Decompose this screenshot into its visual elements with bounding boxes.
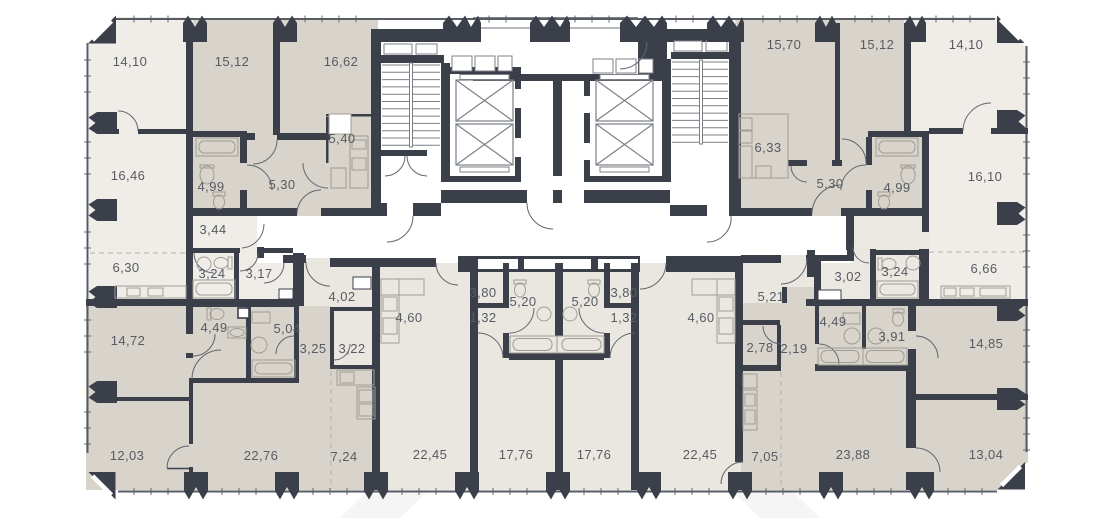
svg-text:22,45: 22,45 <box>683 447 718 462</box>
svg-text:14,10: 14,10 <box>949 37 984 52</box>
svg-text:5,04: 5,04 <box>274 321 301 336</box>
svg-text:23,88: 23,88 <box>836 447 871 462</box>
svg-text:6,30: 6,30 <box>113 260 140 275</box>
svg-text:5,30: 5,30 <box>269 177 296 192</box>
svg-text:4,60: 4,60 <box>688 310 715 325</box>
svg-text:15,70: 15,70 <box>767 37 802 52</box>
svg-text:3,24: 3,24 <box>199 266 226 281</box>
svg-text:14,10: 14,10 <box>113 54 148 69</box>
svg-text:16,10: 16,10 <box>968 169 1003 184</box>
svg-text:3,24: 3,24 <box>882 264 909 279</box>
svg-text:15,12: 15,12 <box>860 37 895 52</box>
svg-text:14,85: 14,85 <box>969 336 1004 351</box>
svg-text:6,66: 6,66 <box>971 261 998 276</box>
svg-text:3,91: 3,91 <box>879 329 906 344</box>
svg-text:5,20: 5,20 <box>510 294 537 309</box>
svg-text:15,12: 15,12 <box>215 54 250 69</box>
svg-text:16,46: 16,46 <box>111 168 146 183</box>
svg-text:5,30: 5,30 <box>817 176 844 191</box>
svg-text:16,62: 16,62 <box>324 54 359 69</box>
svg-text:2,78: 2,78 <box>747 340 774 355</box>
svg-text:7,24: 7,24 <box>331 449 358 464</box>
svg-text:22,76: 22,76 <box>244 448 279 463</box>
svg-text:3,44: 3,44 <box>200 222 227 237</box>
svg-text:13,04: 13,04 <box>969 447 1004 462</box>
svg-text:1,32: 1,32 <box>611 310 638 325</box>
svg-text:4,99: 4,99 <box>884 180 911 195</box>
svg-text:4,99: 4,99 <box>198 179 225 194</box>
svg-text:4,49: 4,49 <box>201 320 228 335</box>
svg-text:4,49: 4,49 <box>820 314 847 329</box>
svg-text:3,80: 3,80 <box>611 285 638 300</box>
svg-text:12,03: 12,03 <box>110 448 145 463</box>
svg-text:2,19: 2,19 <box>781 341 808 356</box>
svg-text:3,17: 3,17 <box>246 266 273 281</box>
svg-text:7,05: 7,05 <box>752 449 779 464</box>
svg-text:6,33: 6,33 <box>755 140 782 155</box>
svg-text:1,32: 1,32 <box>470 310 497 325</box>
svg-text:3,02: 3,02 <box>835 269 862 284</box>
svg-text:3,22: 3,22 <box>339 341 366 356</box>
svg-text:3,25: 3,25 <box>300 341 327 356</box>
svg-text:17,76: 17,76 <box>499 447 534 462</box>
svg-text:4,60: 4,60 <box>396 310 423 325</box>
svg-text:5,21: 5,21 <box>758 289 785 304</box>
svg-text:5,20: 5,20 <box>572 294 599 309</box>
svg-text:22,45: 22,45 <box>413 447 448 462</box>
svg-text:3,80: 3,80 <box>470 285 497 300</box>
svg-text:4,02: 4,02 <box>329 289 356 304</box>
svg-text:5,40: 5,40 <box>329 131 356 146</box>
svg-text:17,76: 17,76 <box>577 447 612 462</box>
svg-text:14,72: 14,72 <box>111 333 146 348</box>
